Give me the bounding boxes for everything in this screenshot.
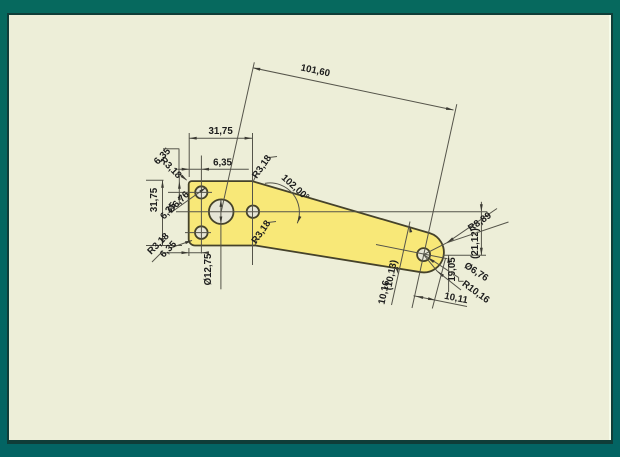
svg-text:101,60: 101,60 bbox=[300, 63, 331, 80]
svg-text:6,35: 6,35 bbox=[213, 158, 232, 169]
svg-text:R3,18: R3,18 bbox=[157, 155, 183, 181]
svg-text:19,05: 19,05 bbox=[447, 257, 458, 282]
svg-text:31,75: 31,75 bbox=[149, 187, 160, 212]
svg-text:31,75: 31,75 bbox=[208, 126, 233, 137]
svg-text:10,11: 10,11 bbox=[443, 291, 469, 307]
svg-text:Ø12,75: Ø12,75 bbox=[203, 253, 214, 285]
